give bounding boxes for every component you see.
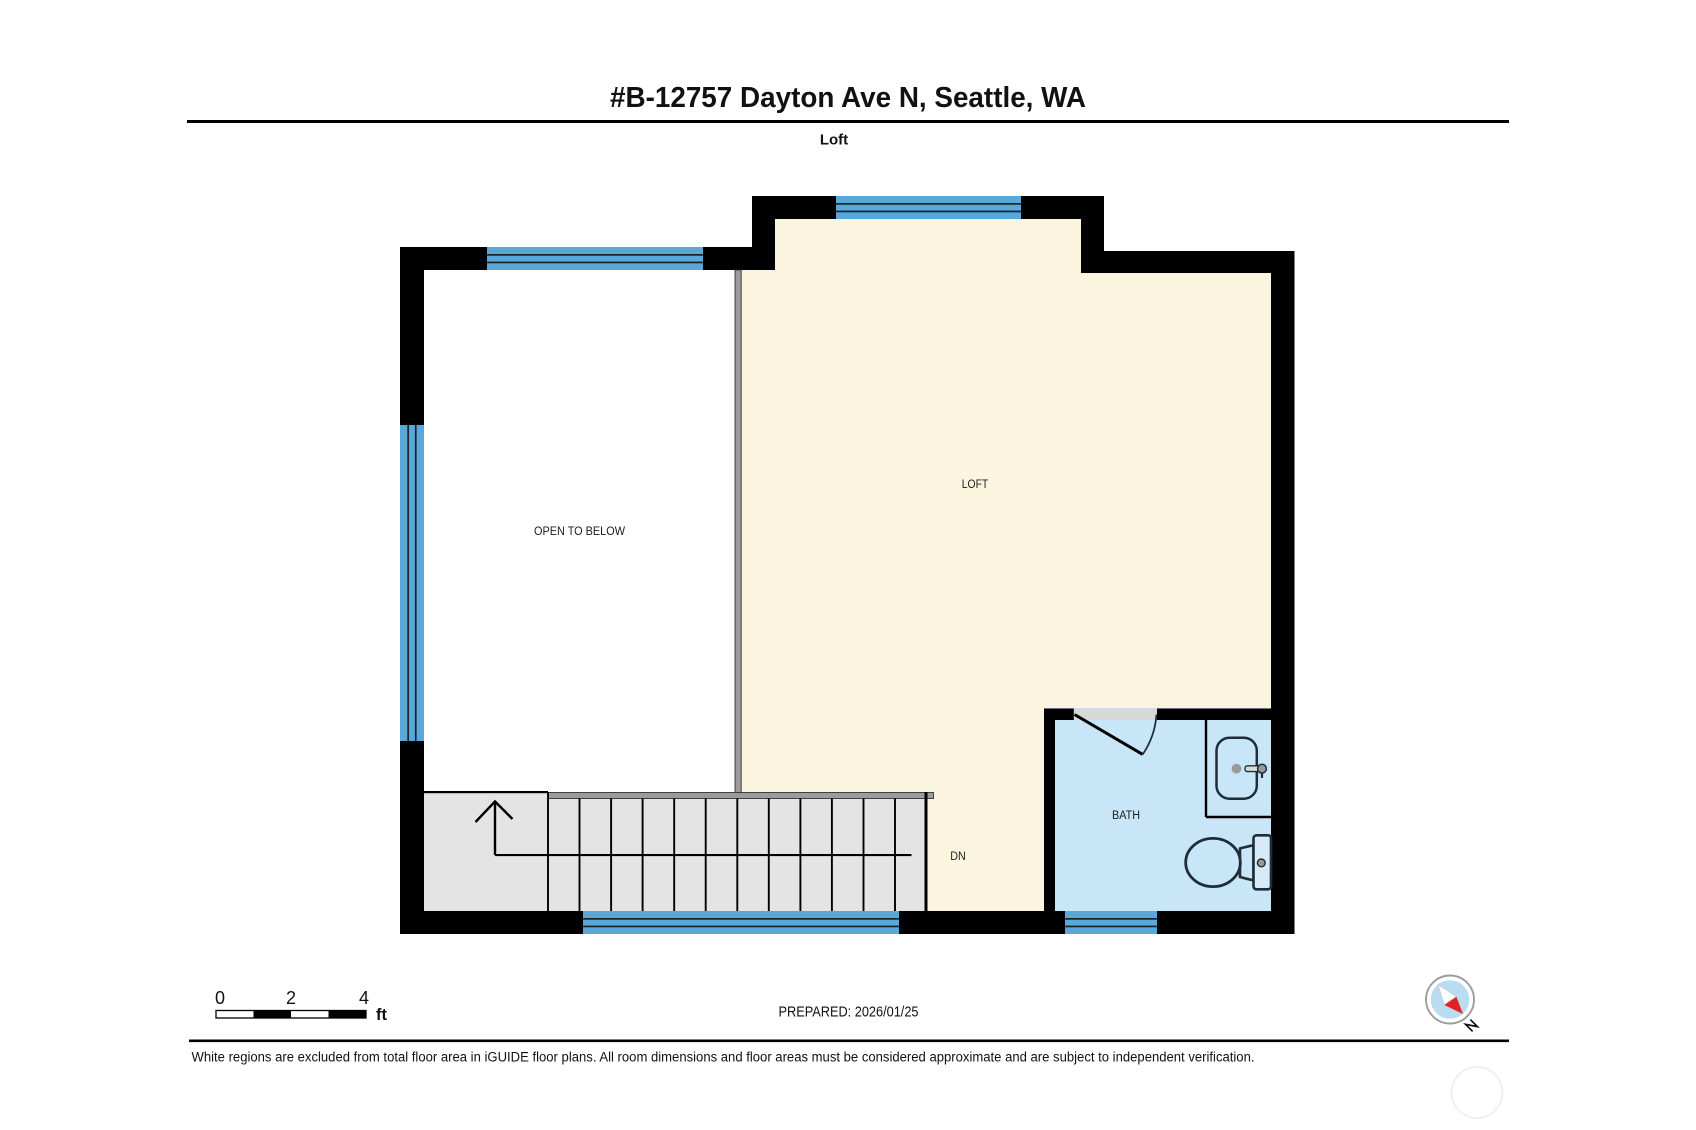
svg-text:PREPARED: 2026/01/25: PREPARED: 2026/01/25 xyxy=(779,1005,919,1021)
svg-text:ft: ft xyxy=(376,1006,387,1024)
svg-text:OPEN TO BELOW: OPEN TO BELOW xyxy=(534,524,626,538)
svg-text:4: 4 xyxy=(359,988,369,1008)
svg-text:White regions are excluded fro: White regions are excluded from total fl… xyxy=(192,1050,1255,1065)
svg-text:0: 0 xyxy=(215,988,225,1008)
svg-text:Loft: Loft xyxy=(820,132,848,149)
svg-text:BATH: BATH xyxy=(1112,810,1140,822)
svg-text:#B-12757 Dayton Ave N, Seattle: #B-12757 Dayton Ave N, Seattle, WA xyxy=(610,82,1086,114)
svg-text:DN: DN xyxy=(950,851,966,863)
svg-text:LOFT: LOFT xyxy=(962,479,989,491)
svg-text:2: 2 xyxy=(286,988,296,1008)
